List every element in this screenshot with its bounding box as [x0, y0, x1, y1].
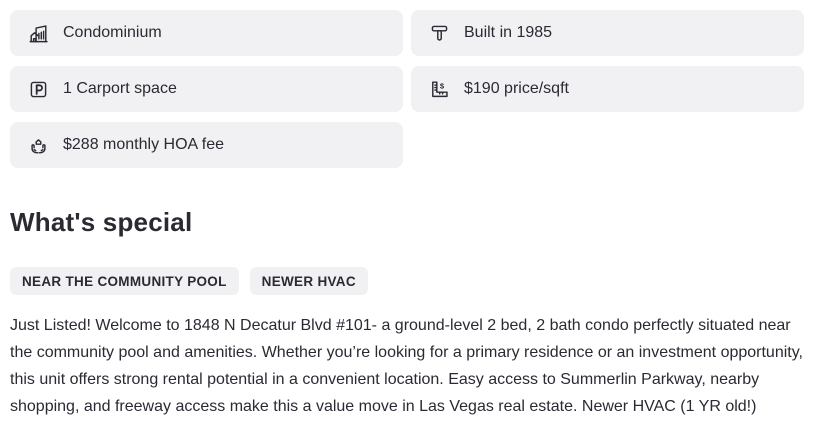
fact-label: 1 Carport space: [63, 80, 177, 98]
whats-special-title: What's special: [10, 207, 804, 238]
fact-card: $288 monthly HOA fee: [10, 122, 403, 168]
special-tag: NEWER HVAC: [250, 267, 368, 295]
fact-card: 1 Carport space: [10, 66, 403, 112]
facts-grid: Condominium Built in 1985 1 Carport spac…: [10, 10, 804, 168]
hands-house-icon: [26, 133, 50, 157]
special-tag: NEAR THE COMMUNITY POOL: [10, 267, 239, 295]
listing-description: Just Listed! Welcome to 1848 N Decatur B…: [10, 312, 804, 420]
fact-card: Condominium: [10, 10, 403, 56]
special-tags-row: NEAR THE COMMUNITY POOLNEWER HVAC: [10, 267, 804, 295]
ruler-dollar-icon: [427, 77, 451, 101]
fact-label: $190 price/sqft: [464, 80, 569, 98]
fact-card: Built in 1985: [411, 10, 804, 56]
fact-label: Condominium: [63, 24, 162, 42]
building-icon: [26, 21, 50, 45]
hammer-icon: [427, 21, 451, 45]
parking-icon: [26, 77, 50, 101]
fact-card: $190 price/sqft: [411, 66, 804, 112]
fact-label: Built in 1985: [464, 24, 552, 42]
listing-details-section: Condominium Built in 1985 1 Carport spac…: [0, 0, 814, 433]
fact-label: $288 monthly HOA fee: [63, 136, 224, 154]
